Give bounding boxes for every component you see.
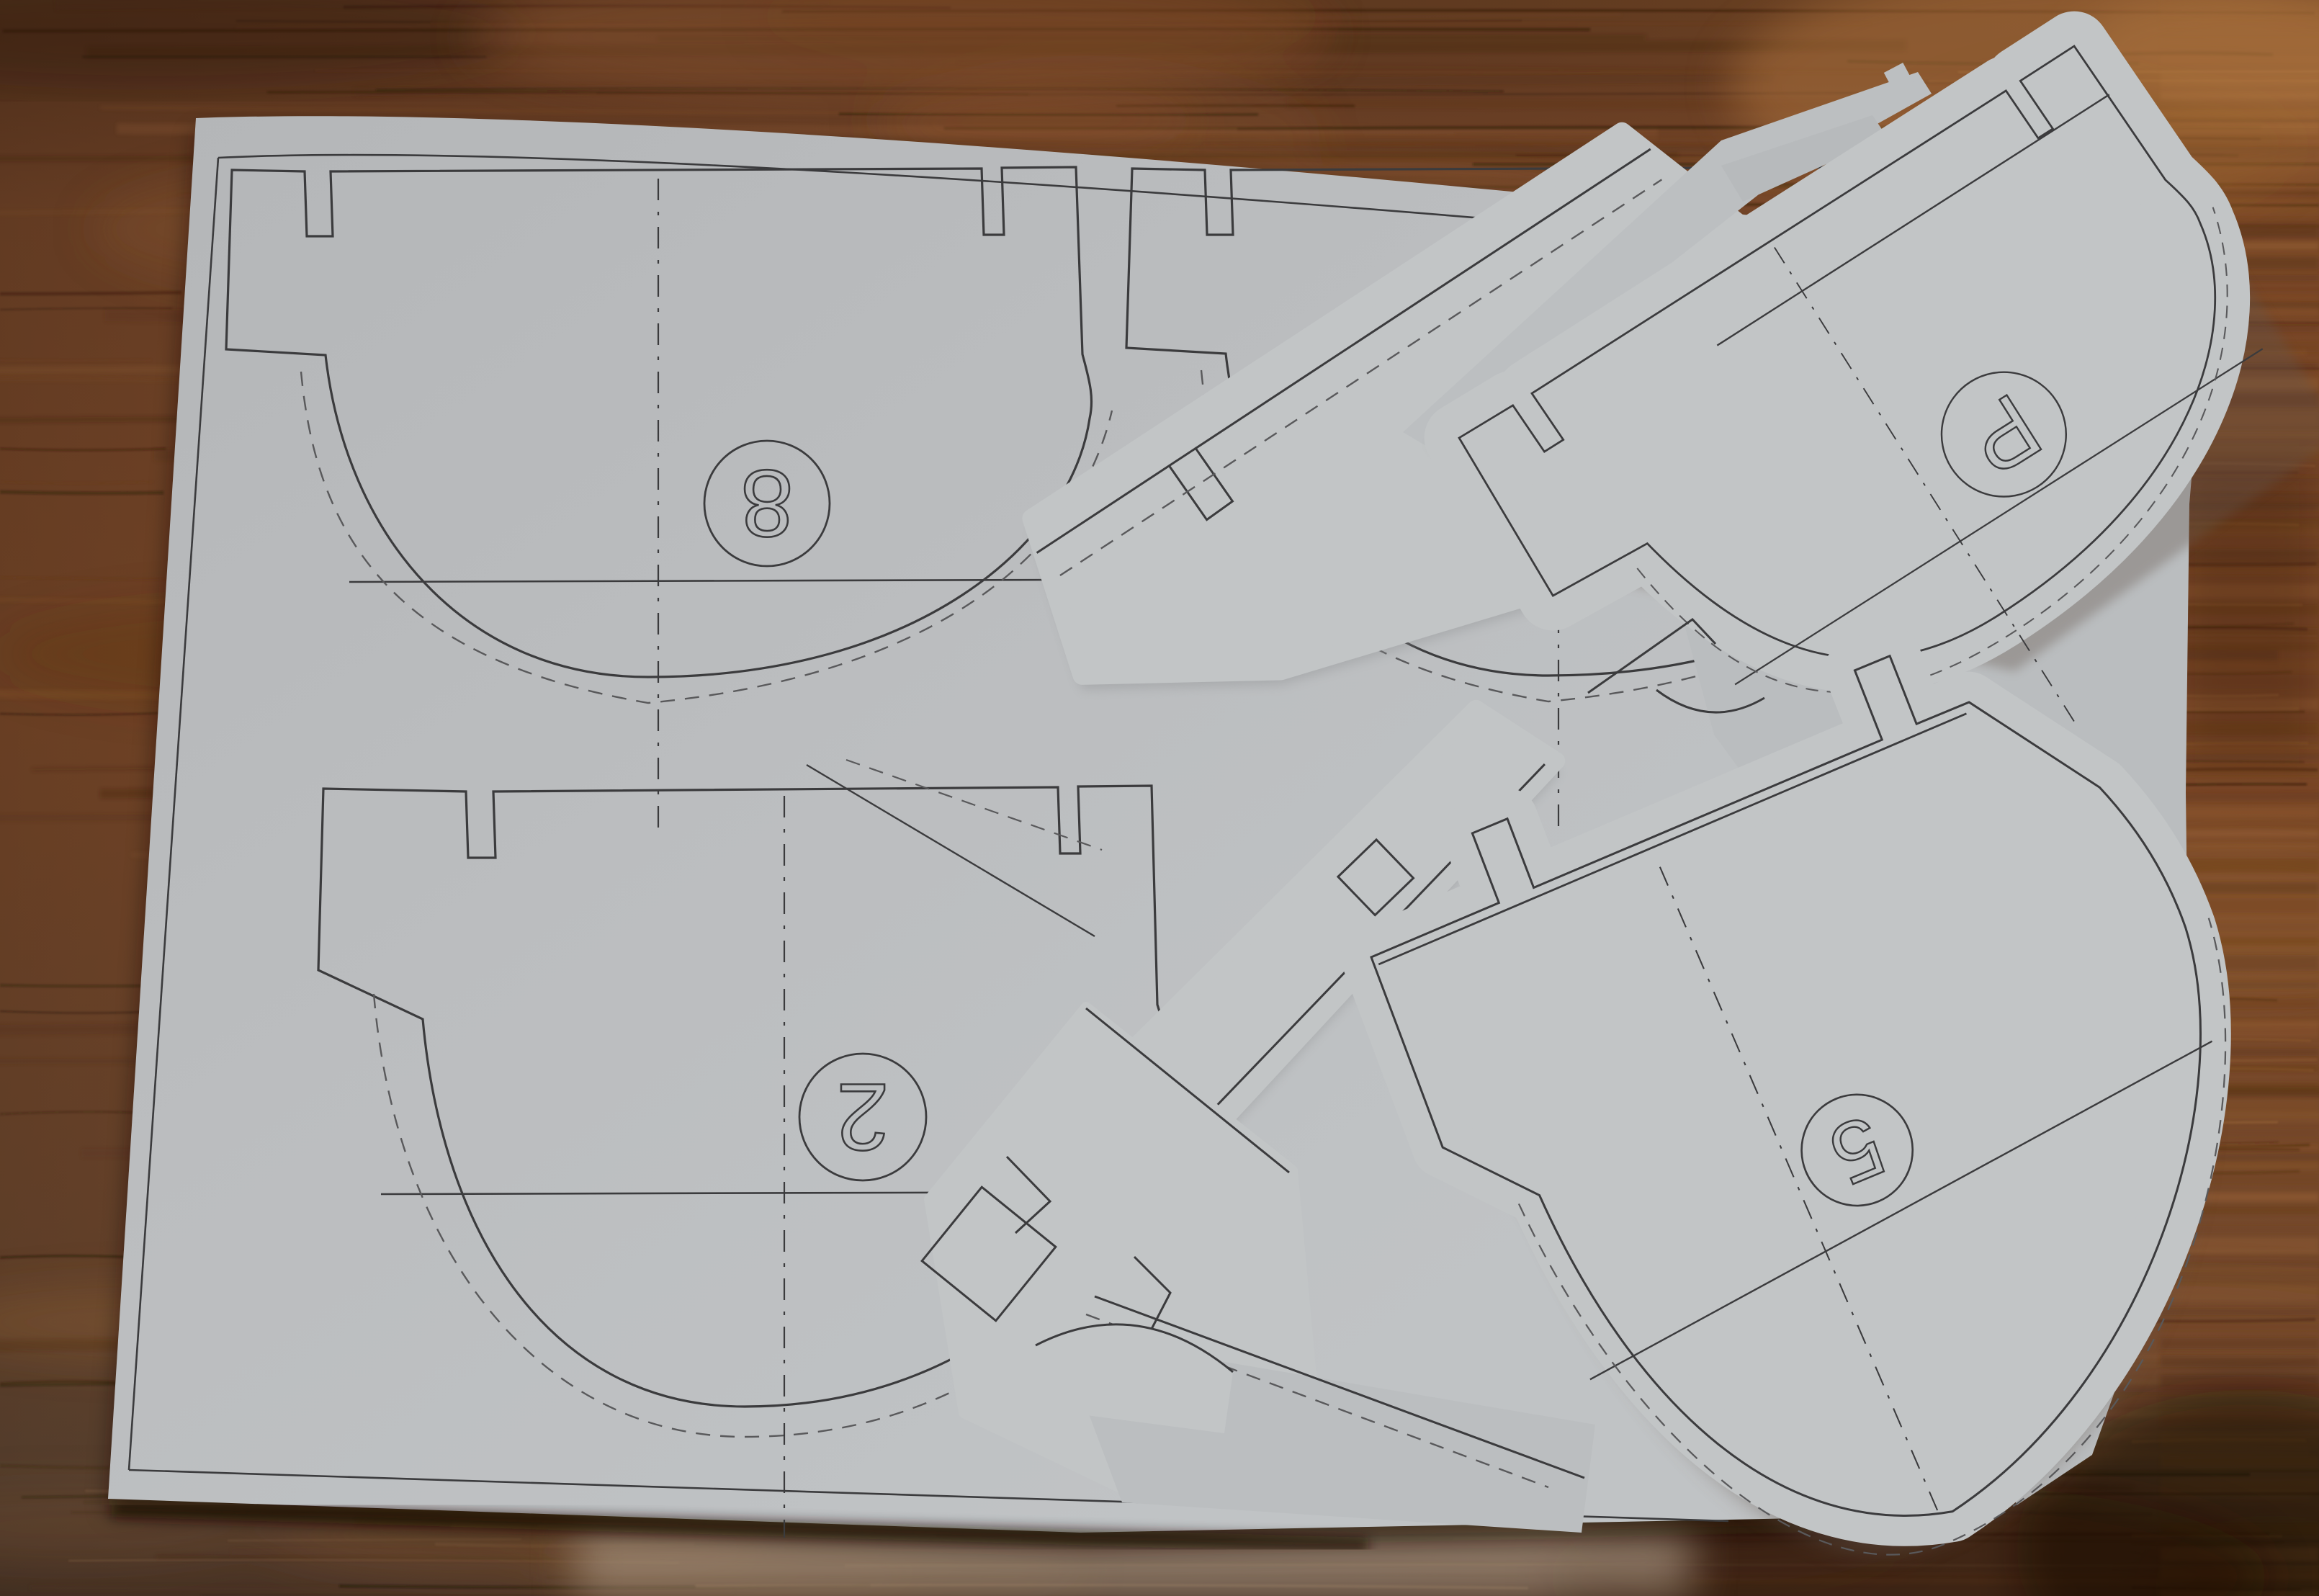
svg-text:2: 2 [836,1064,889,1170]
svg-text:8: 8 [740,451,793,557]
